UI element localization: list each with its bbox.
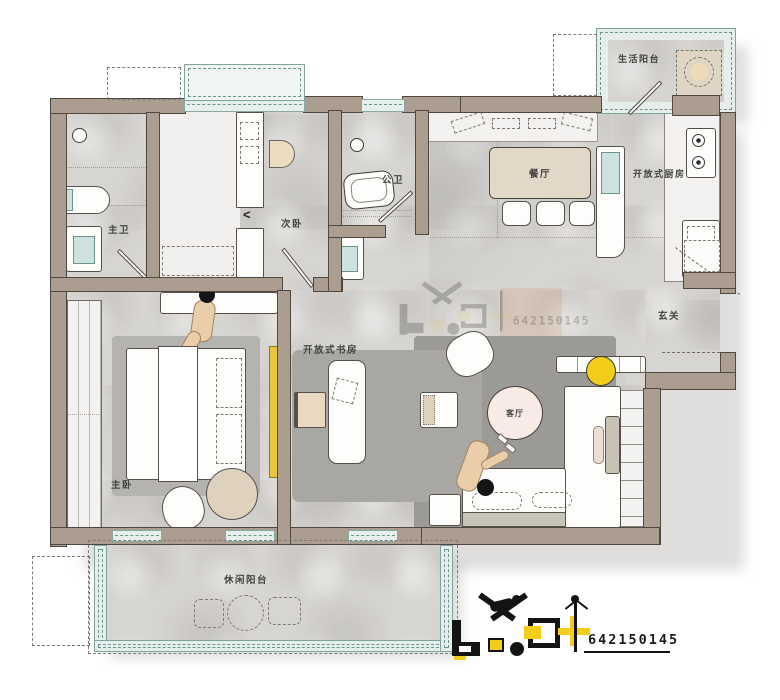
bay-window	[184, 64, 305, 101]
ac-unit-box	[107, 67, 181, 100]
room-label-open-study: 开放式书房	[303, 342, 358, 356]
dining-stool	[536, 201, 565, 226]
kitchen-sink	[601, 152, 620, 194]
dining-stool	[569, 201, 595, 226]
yellow-stool	[586, 356, 616, 386]
balcony-frame-bottom	[94, 640, 453, 652]
balcony-furniture	[227, 595, 264, 631]
wall-step-v	[643, 388, 661, 545]
ac-unit-box	[553, 34, 597, 96]
ac-unit-box	[32, 556, 90, 646]
room-label-leisure-balcony: 休闲阳台	[224, 572, 268, 586]
wall-top-a	[50, 98, 186, 114]
wall-bedroom-top	[50, 277, 283, 292]
wall-top-d	[460, 96, 602, 113]
wall-publicbath-left	[328, 110, 342, 292]
watermark-number: 642150145	[588, 632, 679, 648]
floor-plan-canvas: 主卫 < 次卧 公卫 餐厅 开放式厨房 生活阳台 玄关	[0, 0, 780, 700]
closet-shelf	[240, 146, 259, 164]
study-desk	[328, 360, 366, 464]
bath-dash	[336, 216, 412, 217]
sofa-cushion	[472, 492, 522, 510]
wall-pier-kitchen	[672, 95, 720, 116]
closet-xbox	[162, 246, 234, 276]
closet-shelf	[240, 122, 259, 140]
counter-item	[528, 118, 556, 129]
dining-table: 餐厅	[489, 147, 591, 199]
logo-figure-body	[574, 602, 577, 652]
bed-pillow	[216, 414, 242, 464]
room-label-public-bath: 公卫	[382, 172, 404, 186]
wall-left	[50, 98, 67, 547]
balcony-furniture	[268, 597, 301, 625]
study-chair-right-pad	[423, 395, 435, 425]
study-chair-left	[294, 392, 326, 428]
logo-shape	[400, 323, 424, 333]
room-label-service-balcony: 生活阳台	[618, 52, 660, 65]
room-label-dining: 餐厅	[529, 166, 551, 180]
room-label-master-bath: 主卫	[108, 222, 130, 236]
entry-door-swing	[662, 352, 720, 353]
bedroom-dresser	[160, 292, 278, 314]
balcony-furniture	[194, 599, 224, 628]
coffee-table: 客厅	[487, 386, 543, 440]
shower-head-icon	[72, 128, 87, 143]
wall-shoe-top	[683, 272, 736, 289]
logo-yellow-square	[488, 638, 504, 652]
watermark-logo: 642150145	[450, 594, 675, 660]
washing-machine-core	[690, 63, 708, 81]
wall-masterbed-right	[277, 290, 291, 545]
burner	[692, 156, 705, 169]
bath-dash	[336, 210, 412, 211]
side-table	[429, 494, 461, 526]
shower-head-icon	[350, 138, 364, 152]
logo-dot	[510, 642, 524, 656]
wall-right-upper	[720, 112, 736, 294]
logo-shape	[500, 291, 503, 332]
wardrobe-divider	[68, 414, 101, 415]
wall-right-stub	[720, 352, 736, 374]
room-label-open-kitchen: 开放式厨房	[633, 167, 686, 180]
room-label-secondary-bedroom: 次卧	[281, 216, 303, 230]
person-lying-head	[477, 479, 494, 496]
counter-item	[492, 118, 520, 129]
bath-sink	[73, 236, 95, 264]
wall-top-c	[402, 96, 464, 113]
closet-arrow-glyph: <	[243, 207, 251, 222]
burner	[692, 134, 705, 147]
logo-yellow-chip	[454, 656, 466, 660]
dining-stool	[502, 201, 531, 226]
sofa-base	[462, 512, 566, 527]
leisure-balcony-floor	[107, 545, 440, 640]
wall-publicbath-south	[328, 225, 386, 238]
logo-h-hole	[459, 646, 471, 652]
sofa-backrest	[605, 416, 620, 474]
bed-pillow	[216, 358, 242, 408]
room-label-entry: 玄关	[658, 308, 680, 322]
bedroom-table	[206, 468, 258, 520]
bed-blanket	[158, 346, 198, 482]
logo-yellow-inset	[524, 626, 541, 639]
logo-shape	[458, 311, 472, 321]
logo-person-head	[512, 595, 521, 604]
logo-figure-arm	[577, 600, 588, 610]
bath-dash	[68, 167, 146, 168]
logo-shape	[447, 323, 459, 335]
window-top-2	[361, 99, 405, 112]
sofa-cushion	[532, 492, 572, 508]
room-label-master-bedroom: 主卧	[111, 477, 133, 491]
wall-publicbath-right	[415, 110, 429, 235]
watermark-number: 642150145	[513, 314, 590, 328]
balcony-frame-left	[94, 545, 107, 652]
room-label-living: 客厅	[506, 408, 524, 419]
closet-cabinet-lower	[236, 228, 264, 278]
logo-shape	[430, 319, 444, 331]
watermark-center: 642150145	[398, 282, 589, 338]
logo-underline	[584, 651, 670, 653]
sofa-pillow	[593, 426, 604, 464]
wall-masterbath-right	[146, 112, 160, 282]
